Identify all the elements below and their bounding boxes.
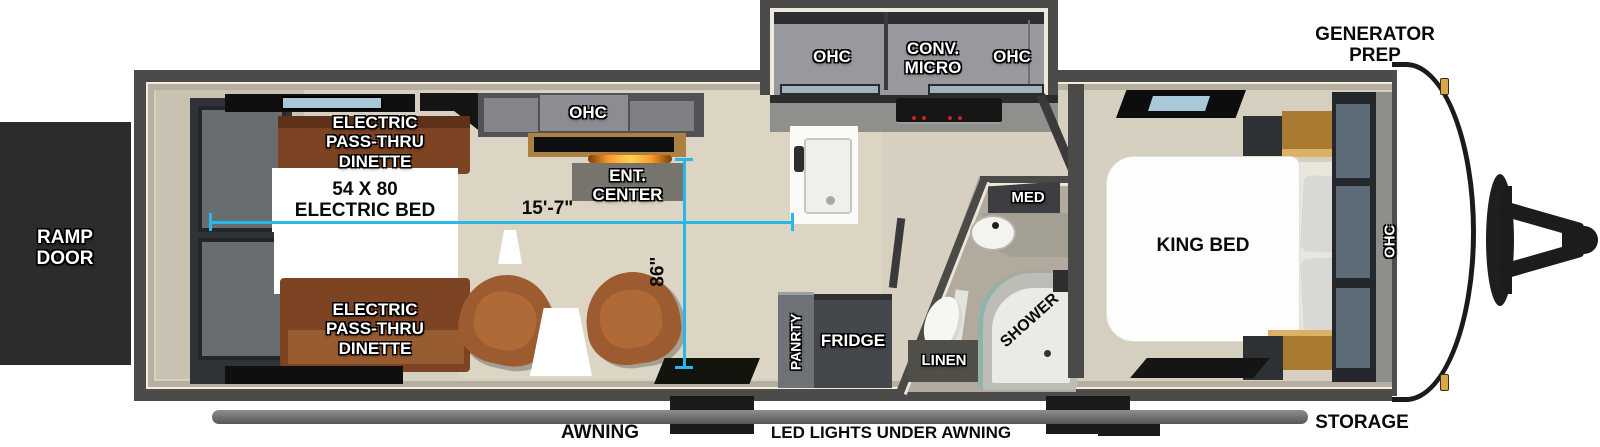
pantry-label: PANRTY xyxy=(778,296,814,388)
shower-label-text: SHOWER xyxy=(997,290,1062,351)
marker-light-bottom xyxy=(1440,374,1449,391)
vanity-sink xyxy=(970,215,1016,251)
kitchen-ohc-left-label: OHC xyxy=(792,44,872,70)
cooktop xyxy=(896,98,1002,124)
storage-label: STORAGE xyxy=(1310,412,1414,434)
bedroom-ohc-label: OHC xyxy=(1376,210,1406,272)
bedroom-ohc-label-text: OHC xyxy=(1383,224,1400,257)
wardrobe-glass-2 xyxy=(1336,186,1370,278)
width-dimension-text: 86" xyxy=(647,257,668,287)
bumpout-cabinet-top xyxy=(774,12,1044,24)
fridge-label: FRIDGE xyxy=(814,328,892,354)
length-dimension-label: 15'-7" xyxy=(500,198,595,220)
width-dim-tick-bottom xyxy=(675,366,693,369)
bedroom-floor-mat xyxy=(1130,358,1270,378)
living-ohc-face-left xyxy=(484,98,538,132)
kitchen-sink-drain xyxy=(826,196,835,205)
dinette-front-label: ELECTRIC PASS-THRU DINETTE xyxy=(295,112,455,172)
awning-label: AWNING xyxy=(540,422,660,444)
width-dim-tick-top xyxy=(675,158,693,161)
kitchen-faucet xyxy=(794,146,804,172)
bedroom-skylight-glass xyxy=(1148,96,1210,111)
electric-bed-label: 54 X 80 ELECTRIC BED xyxy=(272,170,458,230)
led-lights-label: LED LIGHTS UNDER AWNING xyxy=(758,423,1024,443)
cooktop-knob-1 xyxy=(912,116,916,120)
cooktop-knob-4 xyxy=(958,116,962,120)
bumpout-glass-left xyxy=(780,84,880,95)
med-label: MED xyxy=(996,186,1060,210)
garage-skylight xyxy=(281,96,383,110)
hitch-crossbar xyxy=(1500,186,1512,294)
marker-light-top xyxy=(1440,78,1449,95)
rv-floorplan: RAMP DOOR xyxy=(0,0,1600,447)
kitchen-ohc-right-label: OHC xyxy=(972,44,1052,70)
dinette-rear-label: ELECTRIC PASS-THRU DINETTE xyxy=(295,298,455,360)
entry-step-right-tread xyxy=(1098,424,1160,436)
ramp-door-label: RAMP DOOR xyxy=(8,222,122,274)
linen-label: LINEN xyxy=(908,346,980,376)
living-ohc-face-right xyxy=(630,101,694,131)
garage-window-bottom xyxy=(198,238,286,360)
length-dim-tick-right xyxy=(791,213,794,231)
entry-mat xyxy=(654,358,760,384)
length-dim-tick-left xyxy=(209,213,212,231)
vanity-faucet xyxy=(992,222,999,229)
nightstand-top-wood xyxy=(1282,111,1334,157)
cooktop-knob-3 xyxy=(948,116,952,120)
living-ohc-label: OHC xyxy=(540,100,636,126)
width-dimension-label: 86" xyxy=(640,248,676,296)
fireplace-glow xyxy=(588,155,672,163)
wardrobe-glass-3 xyxy=(1336,288,1370,368)
garage-floor-shadow xyxy=(225,366,403,384)
shower-label: SHOWER xyxy=(985,278,1075,364)
wardrobe-glass-1 xyxy=(1336,104,1370,178)
bumpout-glass-right xyxy=(928,84,1044,95)
conv-micro-label: CONV. MICRO xyxy=(886,36,980,80)
generator-prep-label: GENERATOR PREP xyxy=(1299,22,1451,68)
king-bed-label: KING BED xyxy=(1118,232,1288,260)
pantry-label-text: PANRTY xyxy=(788,314,804,371)
ent-center-tv xyxy=(534,137,674,152)
hitch-coupler xyxy=(1562,226,1598,254)
awning-bar xyxy=(212,410,1308,424)
cooktop-knob-2 xyxy=(922,116,926,120)
